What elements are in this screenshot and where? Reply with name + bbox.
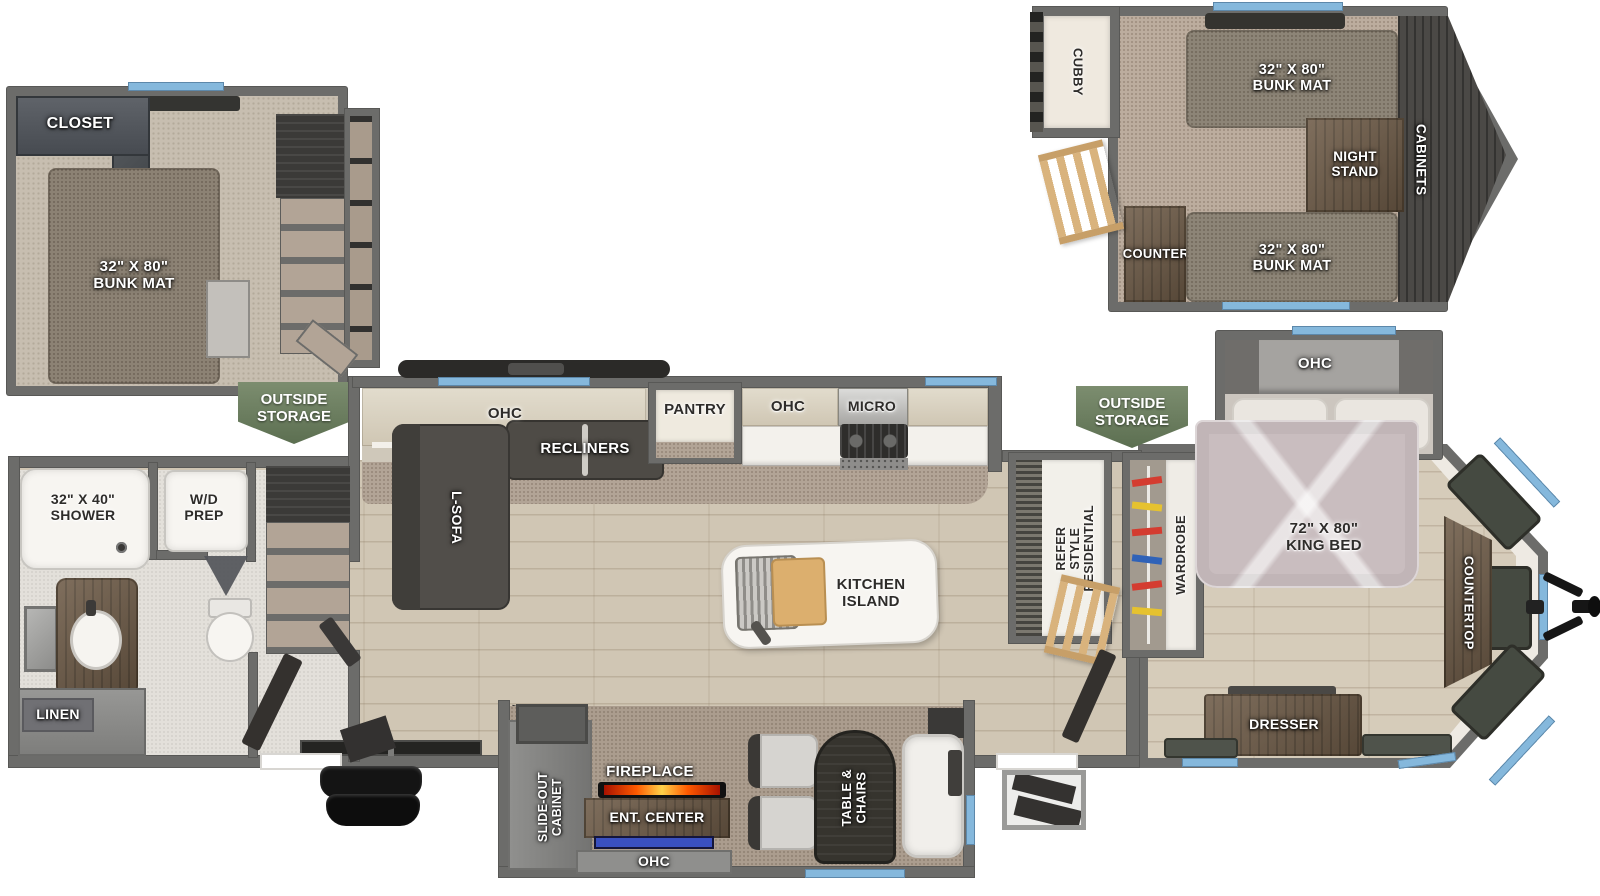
- bedroom-ohc-end-right: [1399, 340, 1433, 394]
- slide-out-cabinet-top: [516, 704, 588, 744]
- ent-center-label: ENT. CENTER: [588, 804, 726, 832]
- rear-loft-stair-landing: [276, 114, 344, 198]
- cooktop: [840, 424, 908, 458]
- fireplace-label: FIREPLACE: [596, 760, 704, 784]
- cooktop-vent: [840, 458, 908, 470]
- outside-storage-badge-front: OUTSIDE STORAGE: [1076, 386, 1188, 448]
- wardrobe-label: WARDROBE: [1166, 466, 1196, 644]
- wall-kitchen-end: [988, 376, 1002, 472]
- kitchen-ohc-right: [908, 388, 988, 426]
- slide-awning-center: [508, 363, 564, 375]
- cabinets-label: CABINETS: [1404, 95, 1438, 225]
- hitch-bar-bottom: [1542, 615, 1584, 642]
- rear-loft-window: [128, 82, 224, 91]
- ent-tv: [594, 836, 714, 849]
- rear-loft-bunk-label: 32" X 80" BUNK MAT: [58, 248, 210, 304]
- front-loft-window-bottom: [1222, 301, 1350, 310]
- night-stand-label: NIGHT STAND: [1310, 136, 1400, 192]
- shower-drain: [116, 542, 127, 553]
- l-sofa-label: L-SOFA: [440, 448, 472, 588]
- table-chairs-label: TABLE & CHAIRS: [822, 744, 888, 852]
- bath-faucet: [86, 600, 96, 616]
- l-sofa-back: [392, 424, 420, 610]
- fireplace-flame: [604, 785, 720, 795]
- hitch-jack: [1526, 600, 1544, 614]
- front-loft-bunk-top-label: 32" X 80" BUNK MAT: [1206, 52, 1378, 104]
- wardrobe-rod: [1147, 466, 1150, 644]
- ent-slide-window-bottom: [805, 869, 905, 878]
- slide-out-cabinet-label: SLIDE-OUT CABINET: [514, 750, 586, 864]
- rv-floorplan: CLOSET 32" X 80" BUNK MAT OUTSIDE STORAG…: [0, 0, 1600, 896]
- ent-speaker: [948, 750, 962, 796]
- hitch-bar-top: [1542, 571, 1584, 598]
- pantry-floor: [656, 442, 734, 458]
- living-ohc-label: OHC: [468, 400, 542, 428]
- bedroom-ohc-end-left: [1225, 340, 1259, 394]
- pantry-label: PANTRY: [652, 396, 738, 424]
- bath-mirror: [24, 606, 58, 672]
- king-bed-label: 72" X 80" KING BED: [1272, 514, 1376, 562]
- wd-prep-label: W/D PREP: [166, 482, 242, 534]
- kitchen-ohc-label: OHC: [752, 394, 824, 420]
- cubby-frame-trim: [1030, 12, 1043, 132]
- king-bed: [1195, 420, 1419, 588]
- main-stair-landing: [266, 466, 350, 522]
- island-label: KITCHEN ISLAND: [828, 570, 914, 618]
- rear-loft-half-wall: [206, 280, 250, 358]
- wall-bedroom-divider: [1126, 652, 1140, 756]
- rear-loft-stair-rail: [350, 116, 372, 360]
- cubby-label: CUBBY: [1048, 20, 1106, 124]
- closet-label: CLOSET: [20, 104, 140, 144]
- shower-label: 32" X 40" SHOWER: [26, 482, 140, 534]
- bedroom-bench-right: [1362, 734, 1452, 756]
- loft-counter-label: COUNTER: [1118, 240, 1194, 268]
- recliners-label: RECLINERS: [500, 436, 670, 462]
- ent-slide-window-side: [966, 795, 975, 845]
- bedroom-window-bottom-left: [1182, 758, 1238, 767]
- bedroom-window: [1292, 326, 1396, 335]
- dresser-label: DRESSER: [1238, 712, 1330, 738]
- cutting-board: [771, 557, 827, 627]
- linen-label: LINEN: [24, 702, 92, 728]
- dining-chair-2: [748, 796, 818, 850]
- bedroom-ohc-label: OHC: [1280, 352, 1350, 376]
- front-loft-window-top: [1213, 2, 1343, 11]
- outside-storage-badge-rear: OUTSIDE STORAGE: [238, 382, 350, 444]
- micro-label: MICRO: [840, 394, 904, 420]
- front-loft-bunk-bottom-label: 32" X 80" BUNK MAT: [1206, 232, 1378, 284]
- refer-coils: [1016, 460, 1042, 636]
- kitchen-window: [925, 377, 997, 386]
- toilet: [206, 612, 254, 662]
- ent-ohc-label: OHC: [616, 850, 692, 874]
- bath-sink: [70, 610, 122, 670]
- entry-steps-left-bottom: [326, 794, 420, 826]
- entry-opening-right: [996, 753, 1078, 770]
- dining-chair-1: [748, 734, 818, 788]
- hitch-coupler: [1588, 596, 1600, 617]
- living-window: [438, 377, 590, 386]
- entry-steps-right: [1002, 770, 1086, 830]
- front-loft-bed-bolster: [1205, 13, 1345, 29]
- bedroom-bench-left: [1164, 738, 1238, 758]
- ent-slide-wall-right: [963, 700, 975, 878]
- countertop-label: COUNTERTOP: [1448, 528, 1488, 678]
